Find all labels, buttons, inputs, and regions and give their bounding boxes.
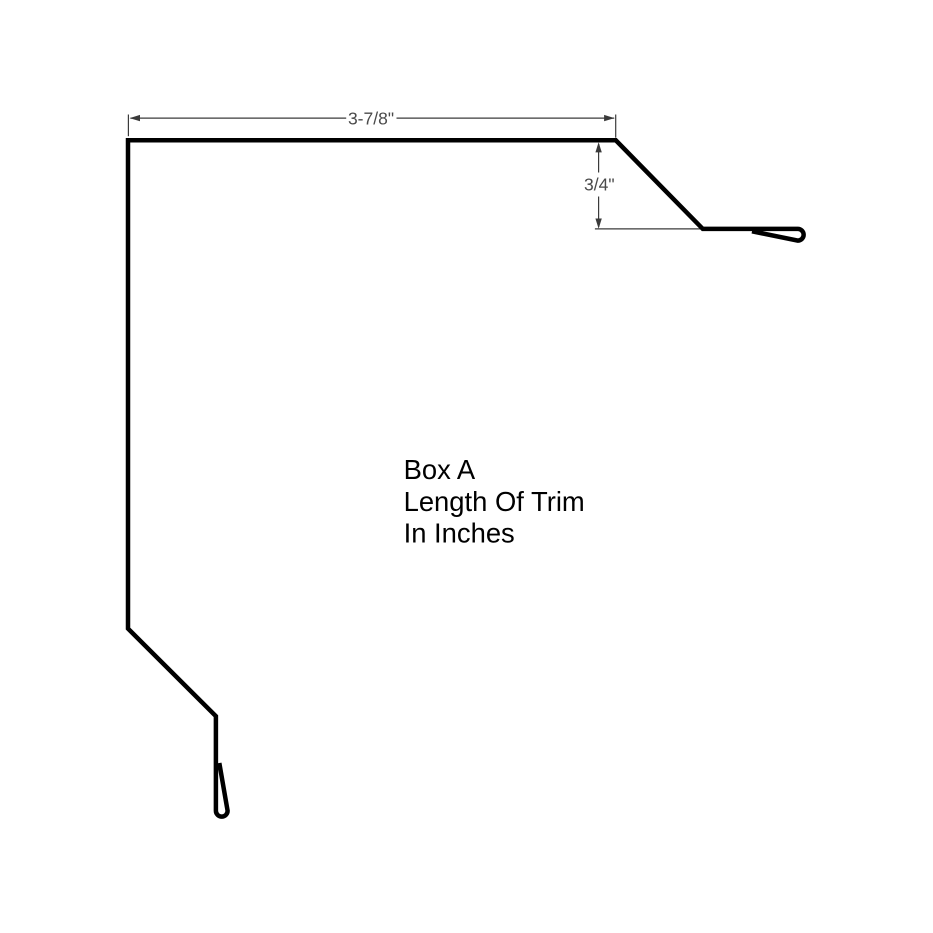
- svg-text:In Inches: In Inches: [404, 517, 515, 548]
- svg-text:Box A: Box A: [404, 454, 476, 485]
- svg-text:3/4": 3/4": [584, 175, 615, 195]
- svg-text:3-7/8": 3-7/8": [348, 108, 394, 128]
- svg-text:Length Of Trim: Length Of Trim: [404, 486, 585, 517]
